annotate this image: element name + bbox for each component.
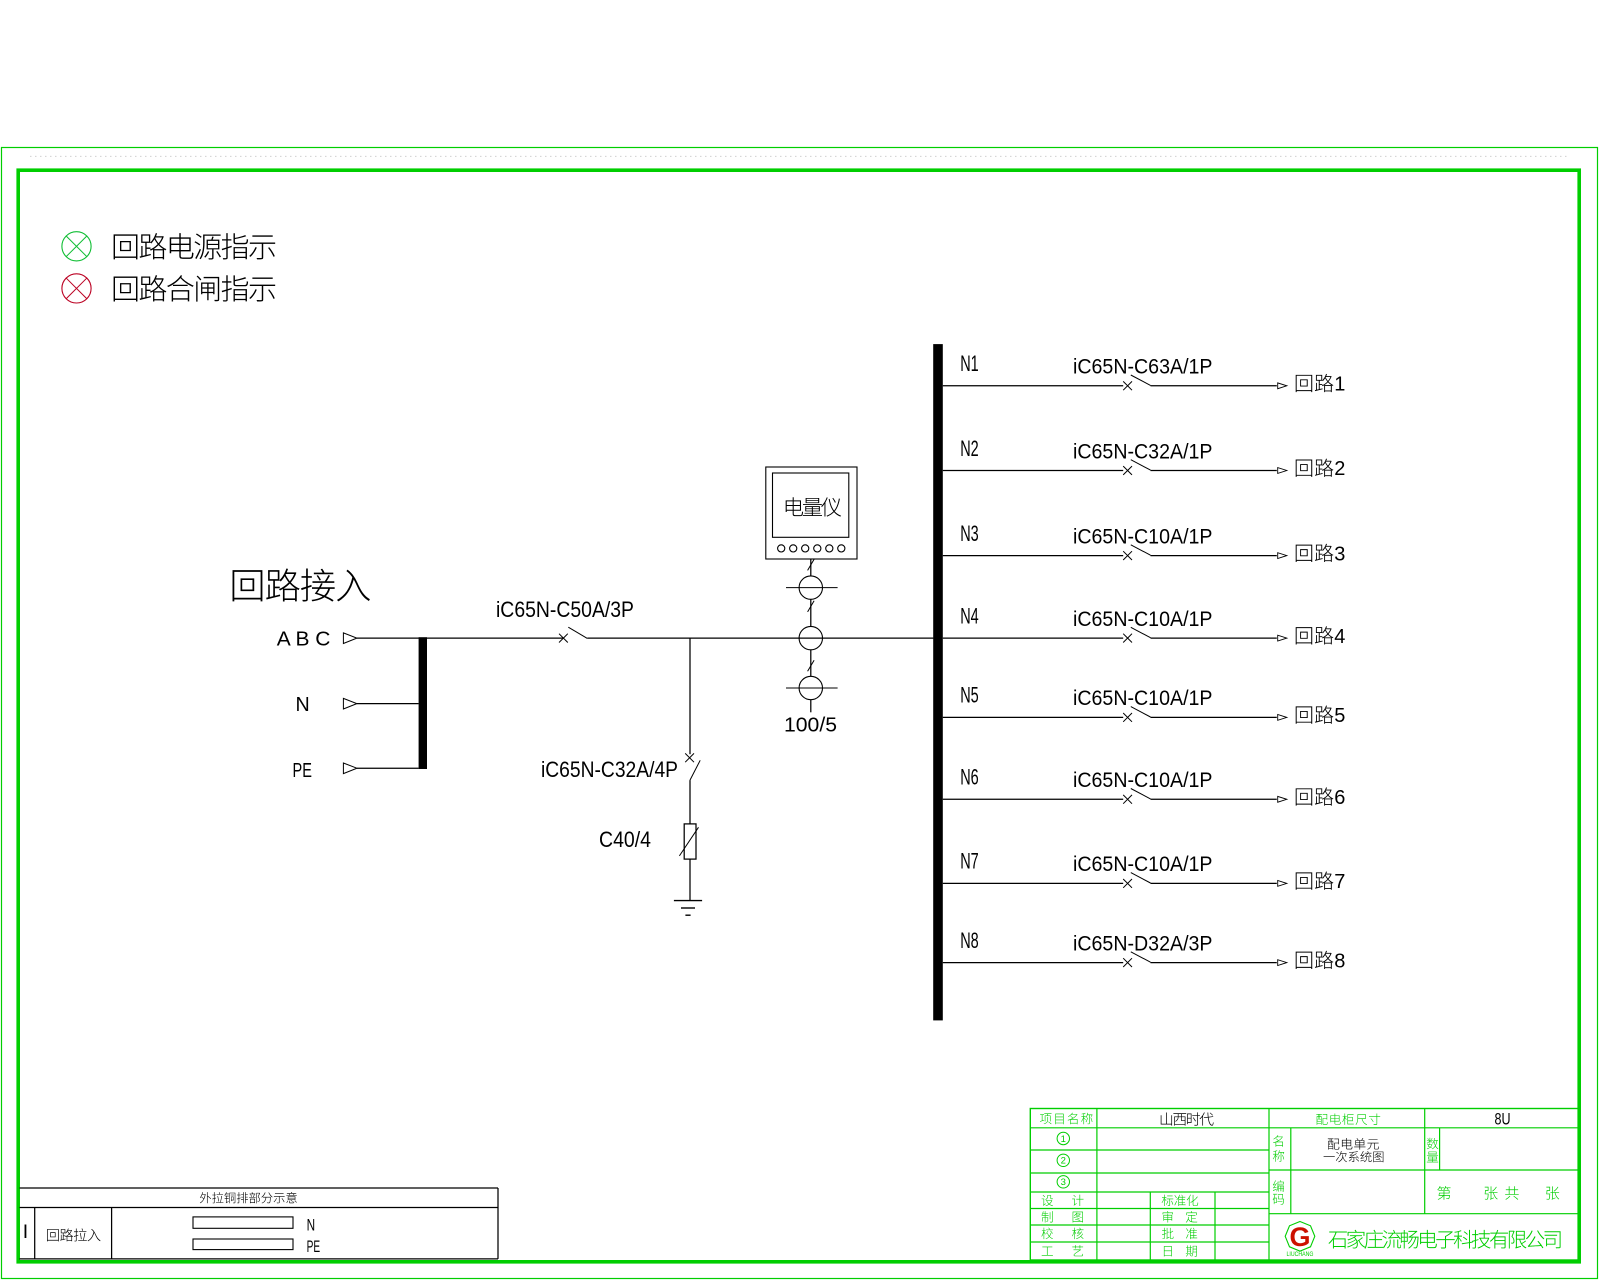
svg-text:2: 2 [1334,458,1345,480]
svg-text:N7: N7 [960,849,979,874]
svg-text:8U: 8U [1495,1110,1511,1129]
svg-text:A B C: A B C [277,628,331,651]
svg-text:N: N [307,1216,316,1234]
svg-text:iC65N-C10A/1P: iC65N-C10A/1P [1073,853,1213,876]
svg-text:N: N [296,693,310,716]
svg-text:G: G [1289,1222,1310,1252]
svg-text:N6: N6 [960,765,979,790]
svg-text:N8: N8 [960,928,979,953]
svg-text:N2: N2 [960,436,979,461]
svg-text:100/5: 100/5 [784,715,837,737]
svg-text:LIUCHANG: LIUCHANG [1287,1251,1314,1258]
svg-text:iC65N-C50A/3P: iC65N-C50A/3P [496,597,634,622]
svg-text:iC65N-C32A/1P: iC65N-C32A/1P [1073,440,1213,463]
svg-text:3: 3 [1334,543,1345,565]
svg-text:N3: N3 [960,521,979,546]
svg-text:C40/4: C40/4 [599,827,651,852]
svg-text:4: 4 [1334,626,1345,648]
svg-text:I: I [23,1221,28,1243]
svg-text:7: 7 [1334,871,1345,893]
svg-text:2: 2 [1061,1156,1066,1167]
svg-text:iC65N-C63A/1P: iC65N-C63A/1P [1073,356,1213,379]
svg-text:1: 1 [1334,374,1345,396]
svg-text:1: 1 [1061,1134,1066,1145]
svg-text:iC65N-C10A/1P: iC65N-C10A/1P [1073,687,1213,710]
svg-text:N4: N4 [960,603,979,628]
svg-text:PE: PE [307,1238,321,1256]
svg-text:iC65N-D32A/3P: iC65N-D32A/3P [1073,932,1213,955]
svg-text:N1: N1 [960,351,979,376]
svg-text:6: 6 [1334,787,1345,809]
svg-text:iC65N-C32A/4P: iC65N-C32A/4P [541,757,678,782]
svg-text:iC65N-C10A/1P: iC65N-C10A/1P [1073,769,1213,792]
svg-text:8: 8 [1334,950,1345,972]
svg-text:iC65N-C10A/1P: iC65N-C10A/1P [1073,608,1213,631]
svg-text:PE: PE [293,759,312,782]
svg-text:N5: N5 [960,683,979,708]
svg-text:3: 3 [1061,1177,1066,1188]
svg-text:5: 5 [1334,705,1345,727]
svg-text:iC65N-C10A/1P: iC65N-C10A/1P [1073,525,1213,548]
